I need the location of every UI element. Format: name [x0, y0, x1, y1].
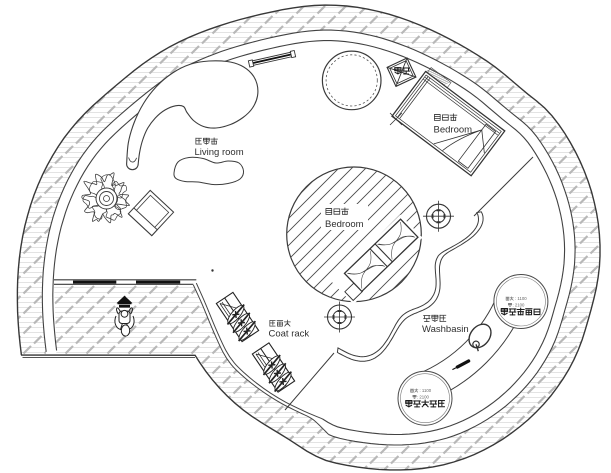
svg-text:Washbasin: Washbasin [422, 324, 469, 335]
svg-text:: 2100: : 2100 [417, 394, 430, 399]
svg-text:: 1100: : 1100 [420, 388, 432, 393]
svg-text:: 1100: : 1100 [515, 296, 527, 301]
svg-text:Bedroom: Bedroom [434, 125, 473, 136]
svg-text:Living room: Living room [195, 147, 244, 158]
svg-text:: 2100: : 2100 [513, 302, 526, 307]
svg-text:Coat rack: Coat rack [269, 329, 310, 340]
svg-text:Bedroom: Bedroom [325, 219, 364, 230]
